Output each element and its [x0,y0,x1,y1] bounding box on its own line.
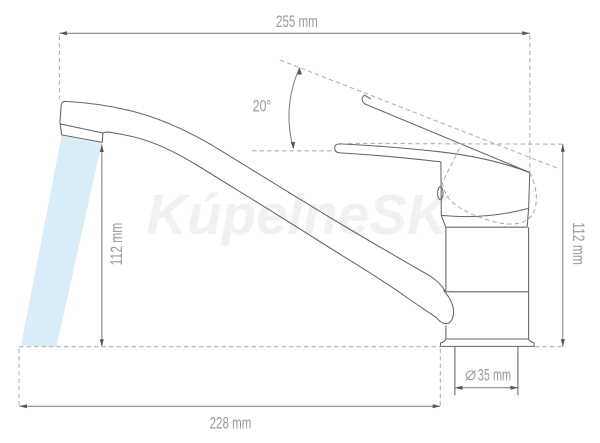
svg-text:35 mm: 35 mm [478,365,511,384]
svg-text:255 mm: 255 mm [276,12,318,30]
svg-text:20°: 20° [253,98,271,116]
svg-text:112 mm: 112 mm [569,222,587,265]
svg-text:228 mm: 228 mm [210,413,252,431]
svg-text:KúpelneSK: KúpelneSK [146,183,452,246]
svg-text:112 mm: 112 mm [108,223,126,266]
